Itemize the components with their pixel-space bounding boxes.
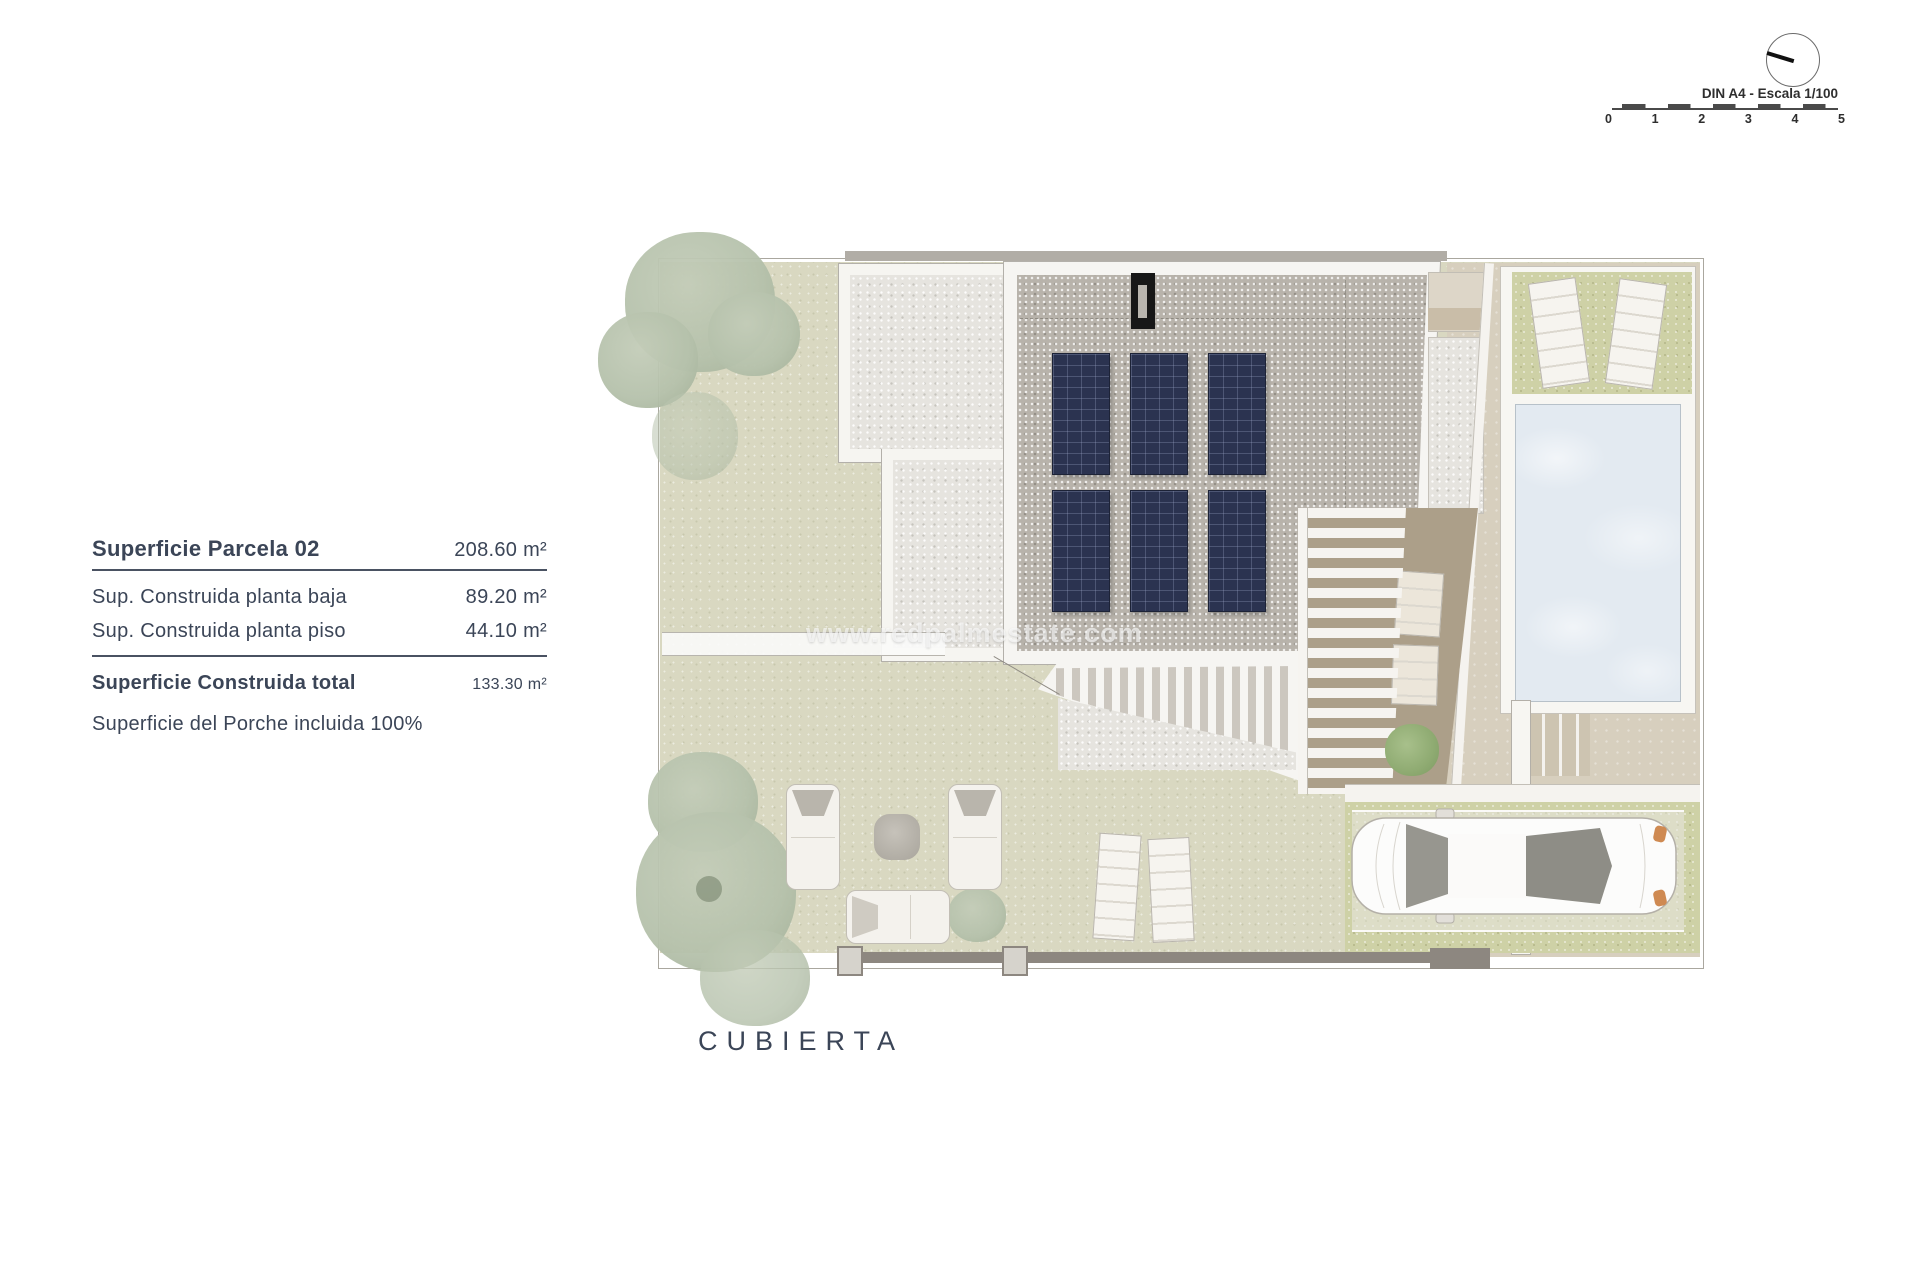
info-row: Sup. Construida planta baja 89.20 m² [92, 580, 547, 614]
surface-info-panel: Superficie Parcela 02 208.60 m² Sup. Con… [92, 536, 547, 736]
fence [838, 952, 1490, 963]
solar-panel [1130, 490, 1188, 612]
solar-panel [1130, 353, 1188, 475]
scale-tick: 1 [1652, 112, 1659, 126]
info-row-value: 89.20 m² [466, 580, 547, 614]
solar-panel [1208, 490, 1266, 612]
scale-tick: 0 [1605, 112, 1612, 126]
scale-bar-ticks: 0 1 2 3 4 5 [1605, 112, 1845, 126]
tree [700, 930, 810, 1026]
solar-panel [1208, 353, 1266, 475]
scale-tick: 3 [1745, 112, 1752, 126]
scale-label: DIN A4 - Escala 1/100 [1638, 86, 1838, 101]
scale-bar-baseline [1612, 108, 1838, 110]
armchair [948, 784, 1002, 890]
info-total-value: 133.30 m² [472, 676, 547, 694]
tree [652, 392, 738, 480]
roof-gravel-light-upper [850, 275, 1005, 449]
solar-panel [1052, 490, 1110, 612]
tree [708, 292, 800, 376]
tree-trunk [696, 876, 722, 902]
fence-post [837, 946, 863, 976]
carport-edge [1345, 784, 1700, 804]
fence-wall-segment [1430, 948, 1490, 969]
info-title-label: Superficie Parcela 02 [92, 536, 320, 562]
sofa [846, 890, 950, 944]
divider [92, 655, 547, 657]
info-row-label: Sup. Construida planta piso [92, 614, 346, 648]
info-title-value: 208.60 m² [454, 539, 547, 562]
info-row: Sup. Construida planta piso 44.10 m² [92, 614, 547, 648]
divider [92, 569, 547, 571]
pergola-frame [1298, 508, 1308, 794]
roof-seam-line [1020, 318, 1420, 319]
pool-steps [1528, 714, 1590, 776]
info-note: Superficie del Porche incluida 100% [92, 713, 547, 736]
coffee-table [874, 814, 920, 860]
info-row-label: Sup. Construida planta baja [92, 580, 347, 614]
swimming-pool [1515, 404, 1681, 702]
info-title-row: Superficie Parcela 02 208.60 m² [92, 536, 547, 562]
bush [1385, 724, 1439, 776]
info-row-value: 44.10 m² [466, 614, 547, 648]
utility-box-band [1428, 308, 1482, 330]
bush [948, 888, 1006, 942]
car-top-view [1348, 808, 1682, 924]
info-total-label: Superficie Construida total [92, 666, 356, 700]
fence-post [1002, 946, 1028, 976]
info-total-row: Superficie Construida total 133.30 m² [92, 666, 547, 700]
chimney-flue [1138, 285, 1147, 318]
sun-lounger [1147, 837, 1194, 943]
scale-tick: 2 [1698, 112, 1705, 126]
armchair [786, 784, 840, 890]
watermark: www.redpalmestate.com [806, 618, 1126, 649]
boundary-wall [845, 251, 1447, 261]
plan-title: CUBIERTA [698, 1026, 904, 1057]
solar-panel [1052, 353, 1110, 475]
sun-lounger [1092, 833, 1141, 942]
scale-tick: 4 [1791, 112, 1798, 126]
scale-tick: 5 [1838, 112, 1845, 126]
plan-sheet: www.redpalmestate.com CUBIERTA Superfici… [0, 0, 1920, 1280]
